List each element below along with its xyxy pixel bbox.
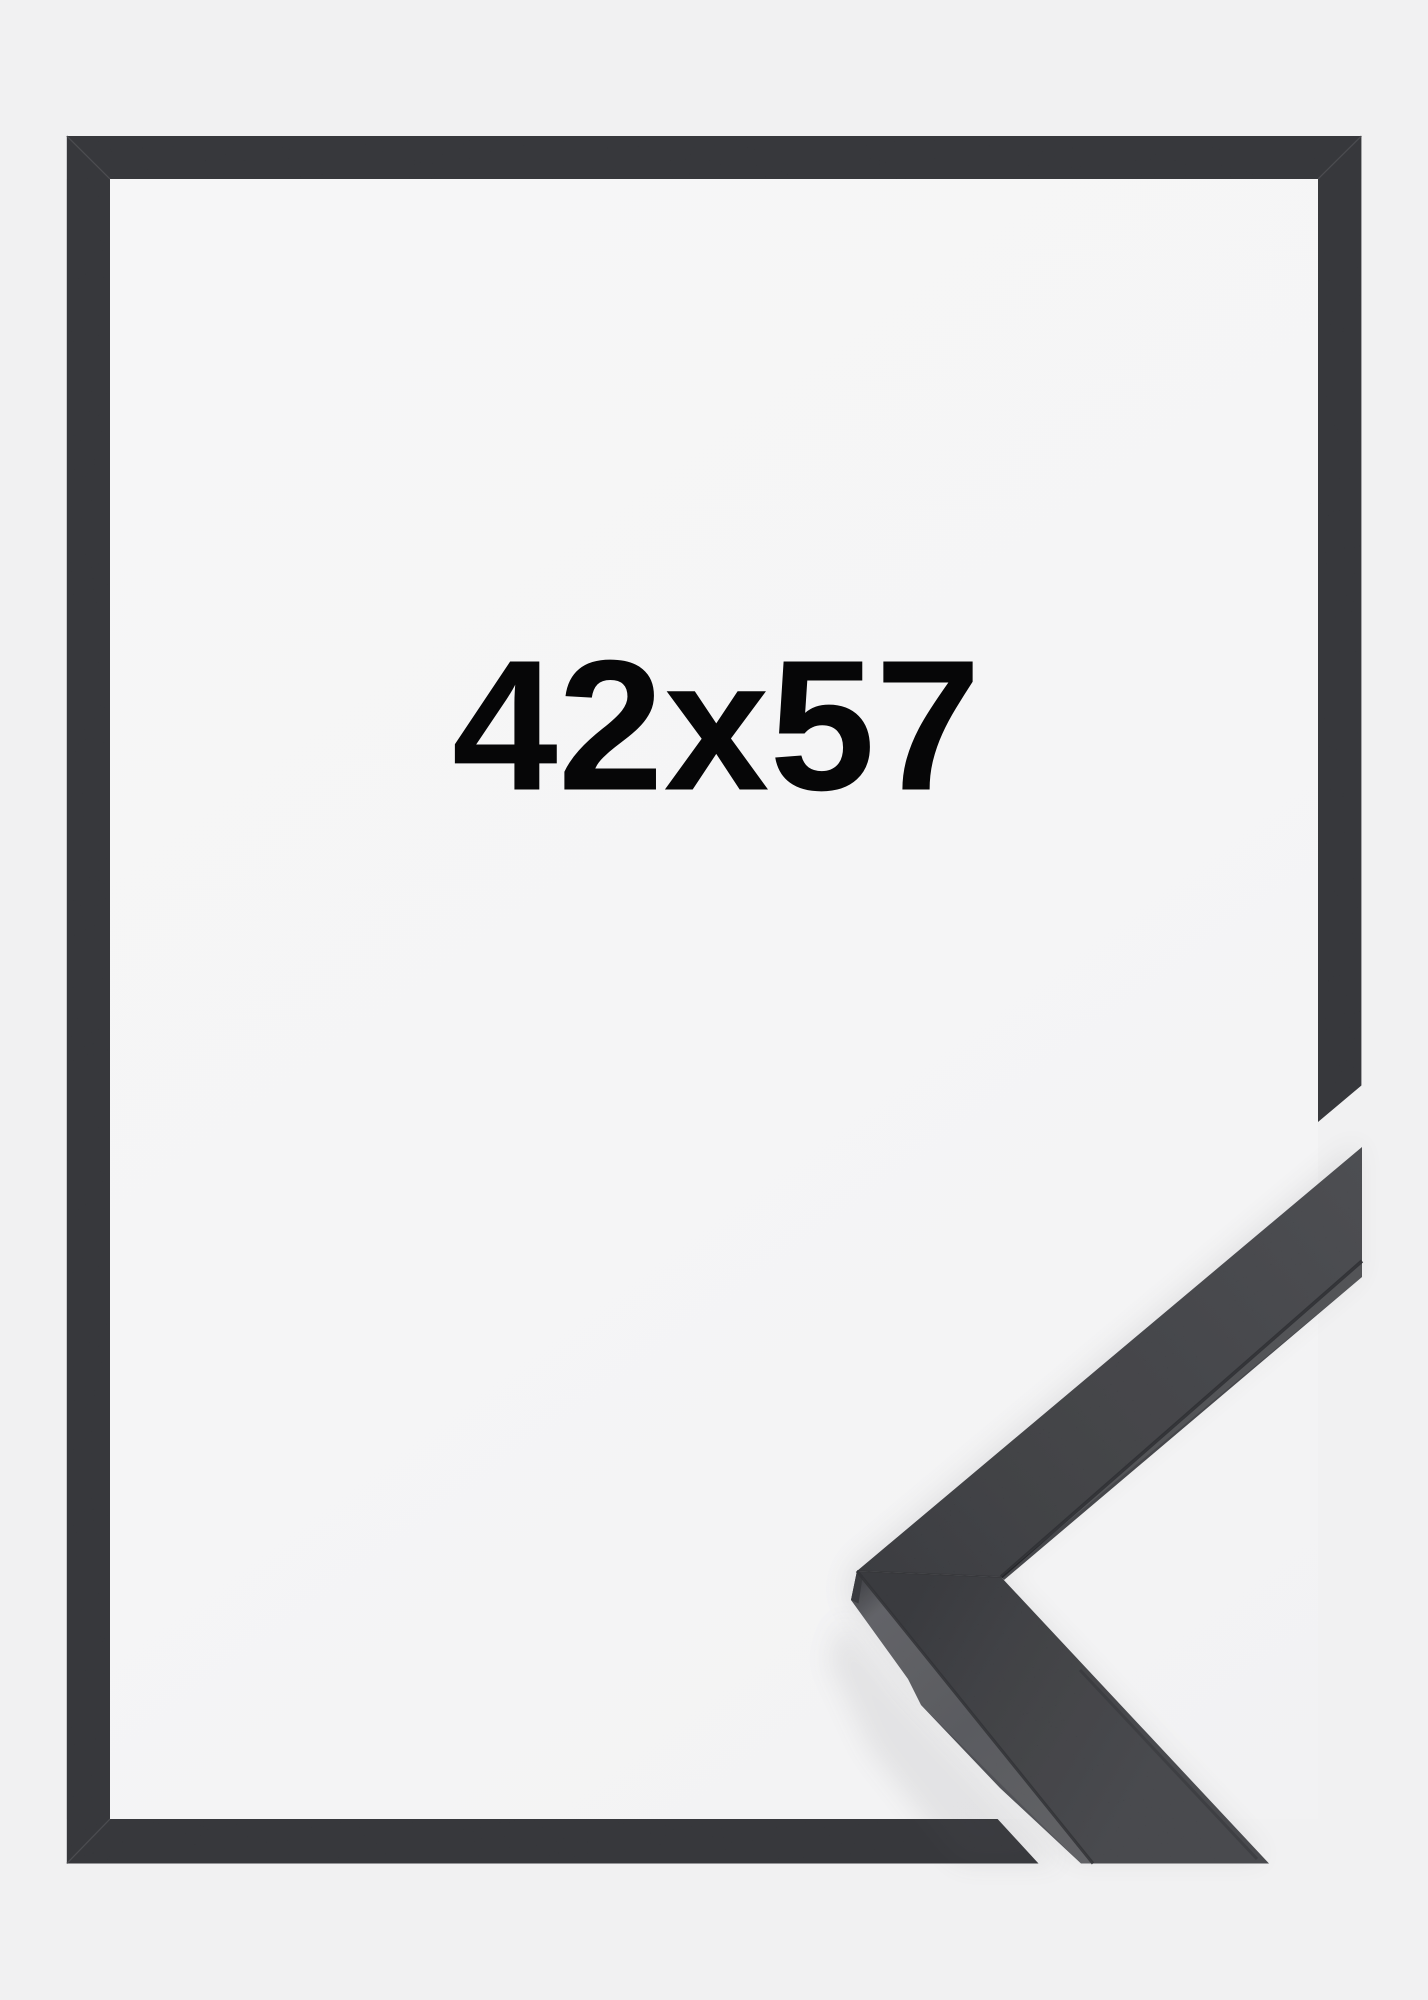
svg-text:42x57: 42x57: [452, 623, 981, 830]
